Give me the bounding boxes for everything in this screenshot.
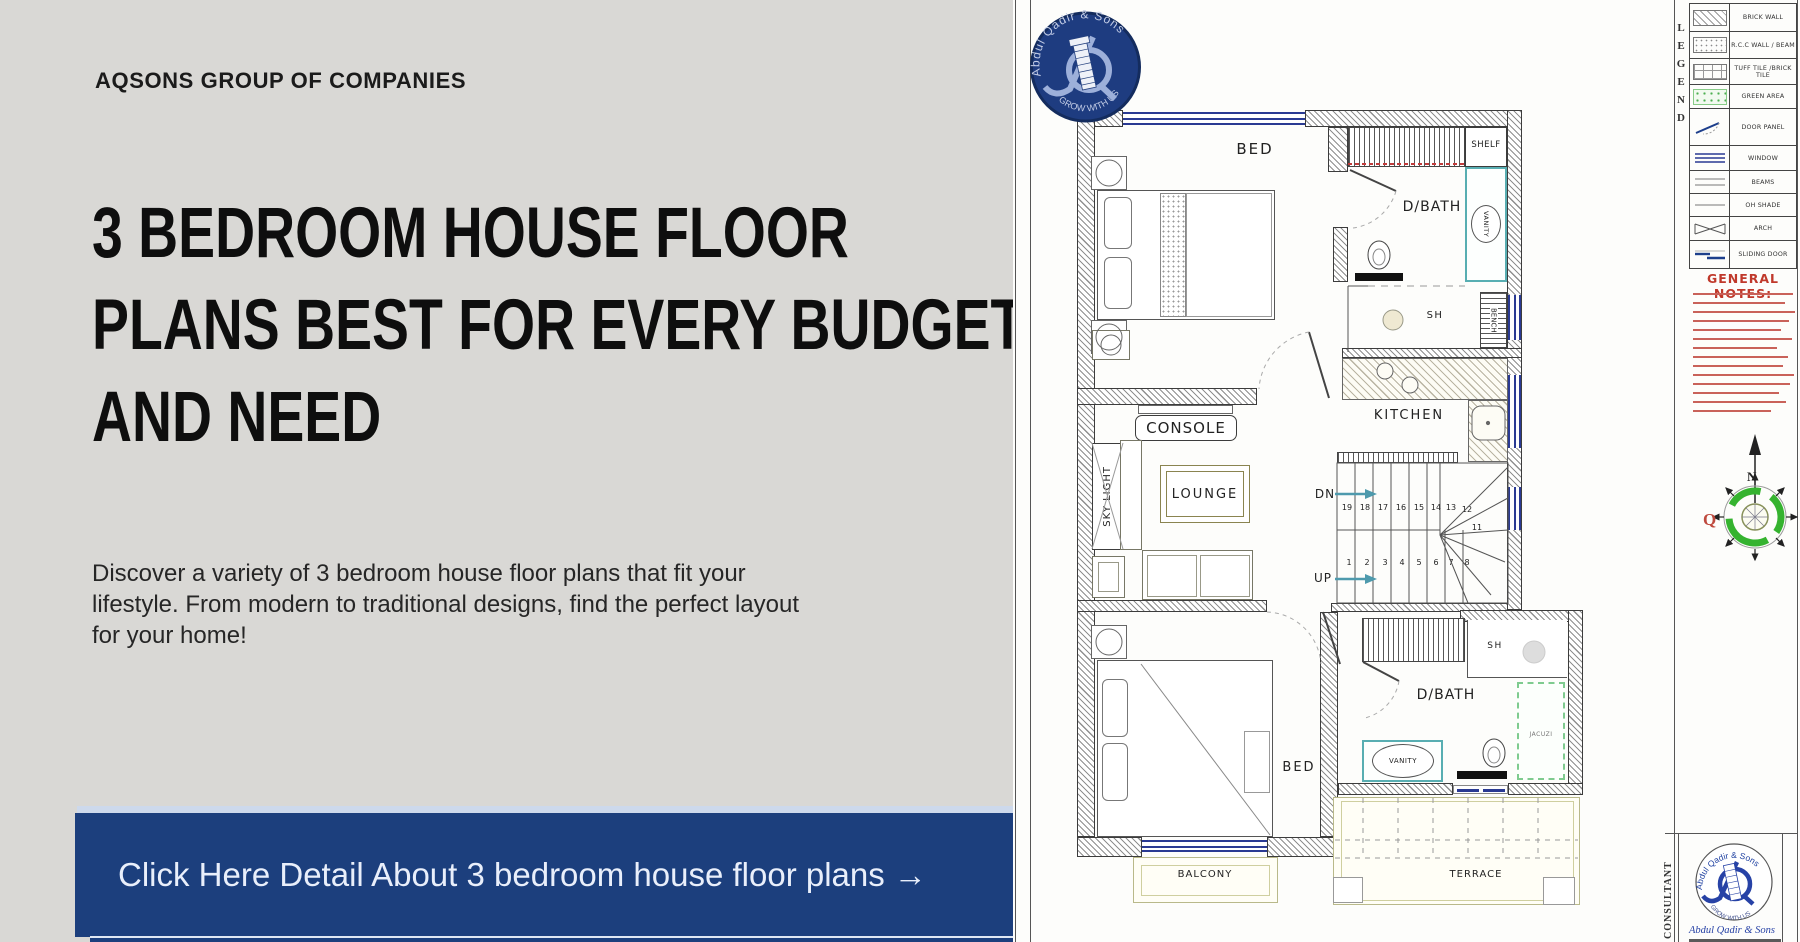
consultant-divider [1665,833,1797,834]
legend-table: BRICK WALL R.C.C WALL / BEAM TUFF TILE /… [1689,3,1797,269]
cta-top-edge [77,806,1103,813]
consultant-label: CONSULTANT [1663,843,1674,939]
legend-row: R.C.C WALL / BEAM [1690,32,1796,59]
consultant-logo: Abdul Qadir & Sons GROW WITH US [1689,840,1779,926]
brick-wall-swatch [1693,10,1727,26]
description-line-3: for your home! [92,622,247,650]
aqsons-logo: Abdul Qadir & Sons GROW WITH US [1028,10,1143,127]
compass-q-mark: Q [1703,510,1716,529]
arch-swatch [1693,221,1727,237]
floor-plan-sheet: SHELF VANITY D/BATH SH BENCH BED BED CON… [1013,0,1800,942]
door-panel-swatch [1693,119,1727,135]
green-area-swatch [1693,89,1727,105]
legend-row: BEAMS [1690,171,1796,194]
beams-swatch [1693,174,1727,190]
left-panel [0,0,1013,942]
sliding-door-swatch [1693,247,1727,263]
compass-north-label: N [1747,469,1757,484]
legend-title: LEGEND [1675,22,1687,132]
rcc-wall-beam-swatch [1693,37,1727,53]
legend-row: TUFF TILE /BRICK TILE [1690,59,1796,85]
legend-row: ARCH [1690,217,1796,241]
description-line-2: lifestyle. From modern to traditional de… [92,591,799,619]
plan-linework: N Q [1013,0,1800,942]
legend-row: GREEN AREA [1690,85,1796,109]
window-swatch [1693,150,1727,166]
brand-line: AQSONS GROUP OF COMPANIES [95,68,466,94]
consultant-strip-border [1678,833,1679,942]
consultant-box-border [1782,833,1783,942]
general-notes-text [1691,293,1795,419]
legend-row: OH SHADE [1690,194,1796,217]
legend-row: WINDOW [1690,146,1796,171]
headline-line-1: 3 BEDROOM HOUSE FLOOR [92,193,849,274]
cta-bottom-strip [90,938,1113,942]
legend-row: DOOR PANEL [1690,109,1796,146]
compass-icon: N Q [1703,434,1797,560]
headline-line-2: PLANS BEST FOR EVERY BUDGET [92,285,1024,366]
tuff-tile-swatch [1693,64,1727,80]
headline-line-3: AND NEED [92,377,381,458]
oh-shade-swatch [1693,197,1727,213]
description-line-1: Discover a variety of 3 bedroom house fl… [92,560,746,588]
legend-row: SLIDING DOOR [1690,241,1796,269]
cta-button[interactable]: Click Here Detail About 3 bedroom house … [75,813,1103,937]
legend-row: BRICK WALL [1690,4,1796,32]
consultant-firm-name: Abdul Qadir & Sons [1682,925,1782,936]
